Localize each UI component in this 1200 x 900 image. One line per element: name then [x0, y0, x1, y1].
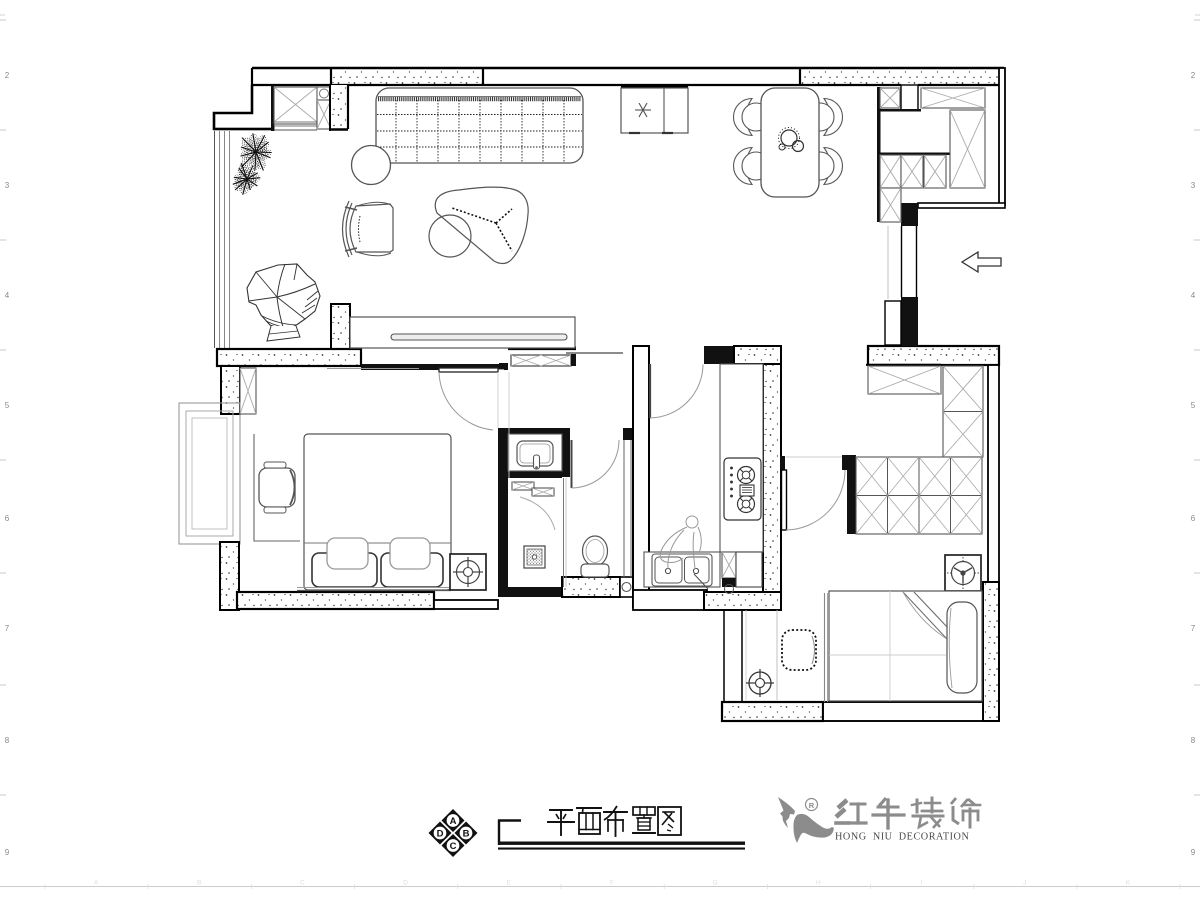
svg-text:C: C	[300, 880, 305, 887]
svg-text:8: 8	[1191, 736, 1196, 745]
svg-text:9: 9	[5, 848, 10, 857]
svg-text:E: E	[507, 880, 512, 887]
svg-text:D: D	[403, 880, 408, 887]
svg-text:D: D	[437, 828, 444, 839]
svg-text:J: J	[1023, 880, 1026, 887]
svg-text:I: I	[921, 880, 923, 887]
svg-text:8: 8	[5, 736, 10, 745]
svg-text:A: A	[450, 816, 457, 827]
svg-text:2: 2	[1191, 71, 1196, 80]
svg-text:2: 2	[5, 71, 10, 80]
svg-text:K: K	[1126, 880, 1131, 887]
svg-text:9: 9	[1191, 848, 1196, 857]
svg-text:A: A	[94, 880, 99, 887]
svg-text:F: F	[610, 880, 614, 887]
svg-text:HONG NIU DECORATION: HONG NIU DECORATION	[835, 832, 969, 843]
svg-text:5: 5	[1191, 401, 1196, 410]
svg-text:3: 3	[1191, 181, 1196, 190]
svg-text:B: B	[197, 880, 201, 887]
svg-text:C: C	[450, 841, 457, 852]
svg-text:4: 4	[5, 291, 10, 300]
svg-text:R: R	[809, 801, 815, 810]
svg-text:6: 6	[1191, 514, 1196, 523]
svg-text:5: 5	[5, 401, 10, 410]
svg-text:6: 6	[5, 514, 10, 523]
svg-text:3: 3	[5, 181, 10, 190]
svg-text:B: B	[463, 828, 470, 839]
svg-text:4: 4	[1191, 291, 1196, 300]
svg-text:7: 7	[1191, 624, 1196, 633]
svg-text:7: 7	[5, 624, 10, 633]
svg-text:G: G	[713, 880, 718, 887]
svg-text:H: H	[816, 880, 821, 887]
